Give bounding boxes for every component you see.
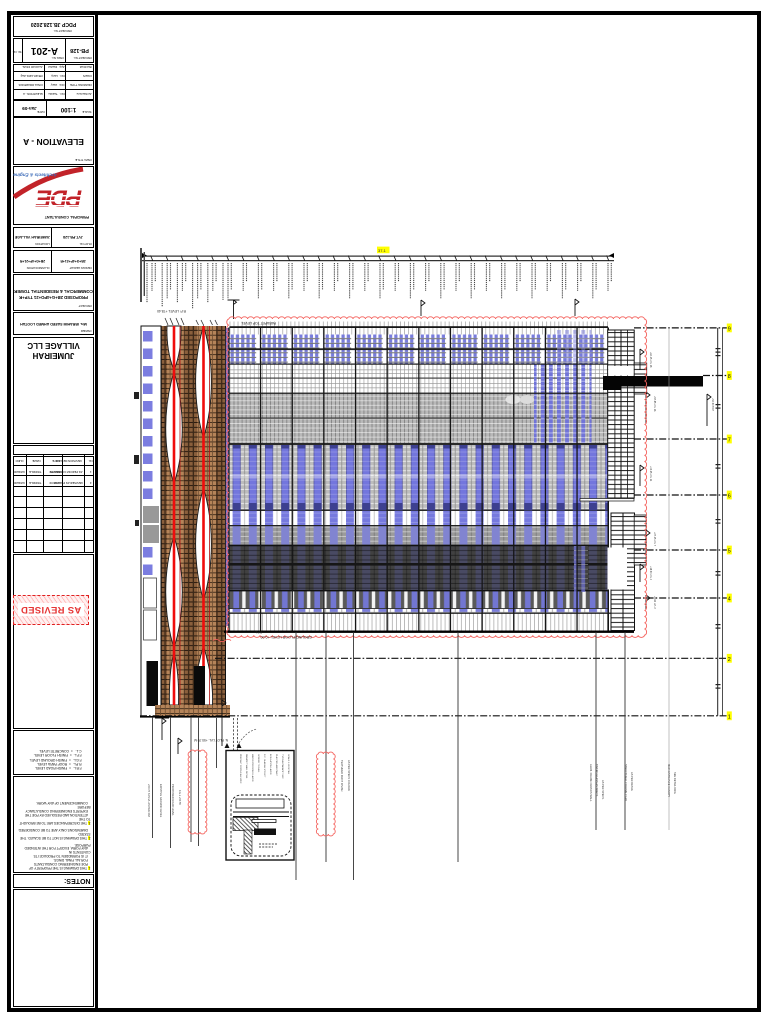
svg-text:SEE DETAIL DWG: SEE DETAIL DWG xyxy=(673,772,677,794)
svg-text:SCREED TO FALL: SCREED TO FALL xyxy=(257,754,260,773)
svg-text:TINTED GLASS AS SPECS: TINTED GLASS AS SPECS xyxy=(595,764,599,797)
svg-text:R.P. LEVEL +78.40: R.P. LEVEL +78.40 xyxy=(157,309,186,313)
svg-text:PARAPET TOP LEVEL: PARAPET TOP LEVEL xyxy=(241,321,276,325)
svg-text:AS PER SPECS COLOUR: AS PER SPECS COLOUR xyxy=(347,760,351,791)
svg-text:F.F.L.: F.F.L. xyxy=(254,630,262,634)
svg-text:7: 7 xyxy=(728,438,731,444)
svg-text:+50.70 N.P.LVL AS PER DM: +50.70 N.P.LVL AS PER DM xyxy=(147,784,151,817)
svg-text:N. PLOT LVL. +50.70 M: N. PLOT LVL. +50.70 M xyxy=(194,738,228,742)
svg-text:GROUND FLOOR LEVEL +0.00: GROUND FLOOR LEVEL +0.00 xyxy=(261,635,313,639)
svg-text:PLASTER AND PAINT: PLASTER AND PAINT xyxy=(275,754,278,777)
svg-text:SCALE 1:10 DETAIL: SCALE 1:10 DETAIL xyxy=(287,754,290,775)
svg-text:+8.90 LVL 2: +8.90 LVL 2 xyxy=(653,596,656,609)
svg-text:TEXTURED PAINT FINISH: TEXTURED PAINT FINISH xyxy=(340,760,344,791)
svg-text:37.1: 37.1 xyxy=(378,248,387,253)
svg-text:PRECAST COPING AS SPEC: PRECAST COPING AS SPEC xyxy=(239,754,242,784)
svg-text:INSULATION LAYER: INSULATION LAYER xyxy=(269,754,272,775)
svg-text:+42.35 LVL 11: +42.35 LVL 11 xyxy=(649,466,652,482)
svg-text:6: 6 xyxy=(728,494,731,500)
svg-text:+57.85 LVL 16: +57.85 LVL 16 xyxy=(653,396,656,412)
svg-text:AS PER SPECS.: AS PER SPECS. xyxy=(601,780,605,800)
svg-text:MAIN ENTRANCE CANOPY: MAIN ENTRANCE CANOPY xyxy=(667,764,671,797)
svg-text:TYPICAL PARAPET SEC: TYPICAL PARAPET SEC xyxy=(281,754,284,779)
svg-text:PARAPET WALL DETAIL: PARAPET WALL DETAIL xyxy=(245,754,248,779)
svg-text:2: 2 xyxy=(728,657,731,663)
svg-text:WATER PROOFING LAYER: WATER PROOFING LAYER xyxy=(251,754,254,782)
svg-text:1: 1 xyxy=(728,714,731,720)
svg-text:8: 8 xyxy=(728,374,731,380)
svg-text:AS PER DETAIL: AS PER DETAIL xyxy=(630,772,634,792)
svg-text:R.C. SLAB AS STRUCT: R.C. SLAB AS STRUCT xyxy=(263,754,266,778)
svg-text:+64.15 LVL 18: +64.15 LVL 18 xyxy=(649,352,652,368)
svg-text:PROPOSED ROAD LEVEL: PROPOSED ROAD LEVEL xyxy=(171,784,175,816)
svg-text:+27.15 LVL 7: +27.15 LVL 7 xyxy=(653,532,656,547)
svg-text:+54.50 TOP: +54.50 TOP xyxy=(711,398,714,411)
svg-text:4: 4 xyxy=(728,597,731,603)
svg-text:9: 9 xyxy=(728,327,731,333)
svg-text:STRUCTURAL COLUMN CLAD: STRUCTURAL COLUMN CLAD xyxy=(624,764,628,801)
svg-text:+18.50 LVL 4: +18.50 LVL 4 xyxy=(649,566,652,581)
svg-text:5: 5 xyxy=(728,549,731,555)
svg-text:EXISTING GROUND LEVEL: EXISTING GROUND LEVEL xyxy=(159,784,163,818)
svg-text:ALUM. FRAME CURTAIN WALL: ALUM. FRAME CURTAIN WALL xyxy=(589,764,593,802)
svg-text:F.G.L +50.55: F.G.L +50.55 xyxy=(178,790,182,805)
